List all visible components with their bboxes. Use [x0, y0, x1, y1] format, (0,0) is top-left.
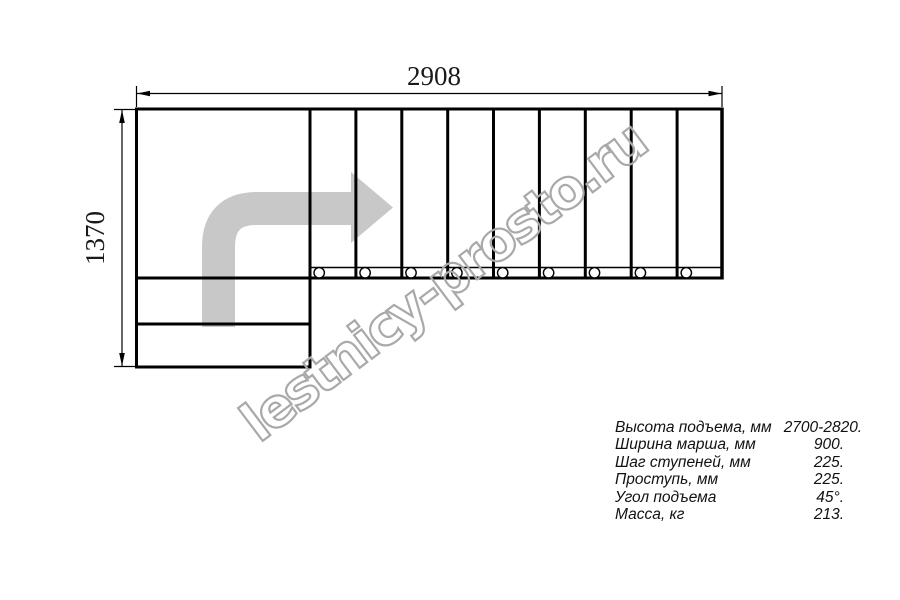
baluster-circles: [314, 268, 692, 278]
spec-value: 45°.: [816, 489, 844, 507]
spec-label: Угол подъема: [615, 489, 716, 507]
direction-arrow-icon: [219, 172, 394, 327]
spec-value: 900.: [814, 436, 844, 454]
spec-table: Высота подъема, мм 2700-2820. Ширина мар…: [615, 419, 844, 523]
spec-row-mass: Масса, кг 213.: [615, 506, 844, 523]
spec-row-height: Высота подъема, мм 2700-2820.: [615, 419, 844, 436]
spec-label: Проступь, мм: [615, 471, 718, 489]
spec-value: 225.: [814, 471, 844, 489]
spec-row-tread: Проступь, мм 225.: [615, 471, 844, 488]
spec-value: 225.: [814, 454, 844, 472]
spec-label: Ширина марша, мм: [615, 436, 756, 454]
spec-row-step-pitch: Шаг ступеней, мм 225.: [615, 454, 844, 471]
dimension-height: 1370: [80, 110, 135, 367]
dimension-height-label: 1370: [80, 211, 110, 265]
spec-value: 2700-2820.: [784, 419, 862, 437]
spec-row-angle: Угол подъема 45°.: [615, 489, 844, 506]
spec-label: Шаг ступеней, мм: [615, 454, 751, 472]
staircase-plan-page: 2908 1370 lestnicy-prosto.ru Высота подъ…: [0, 0, 900, 600]
step-riser-lines: [356, 109, 677, 278]
spec-value: 213.: [814, 506, 844, 524]
spec-label: Масса, кг: [615, 506, 684, 524]
spec-label: Высота подъема, мм: [615, 419, 772, 437]
dimension-width-label: 2908: [407, 61, 461, 91]
dimension-width: 2908: [137, 61, 723, 107]
spec-row-march-width: Ширина марша, мм 900.: [615, 436, 844, 453]
